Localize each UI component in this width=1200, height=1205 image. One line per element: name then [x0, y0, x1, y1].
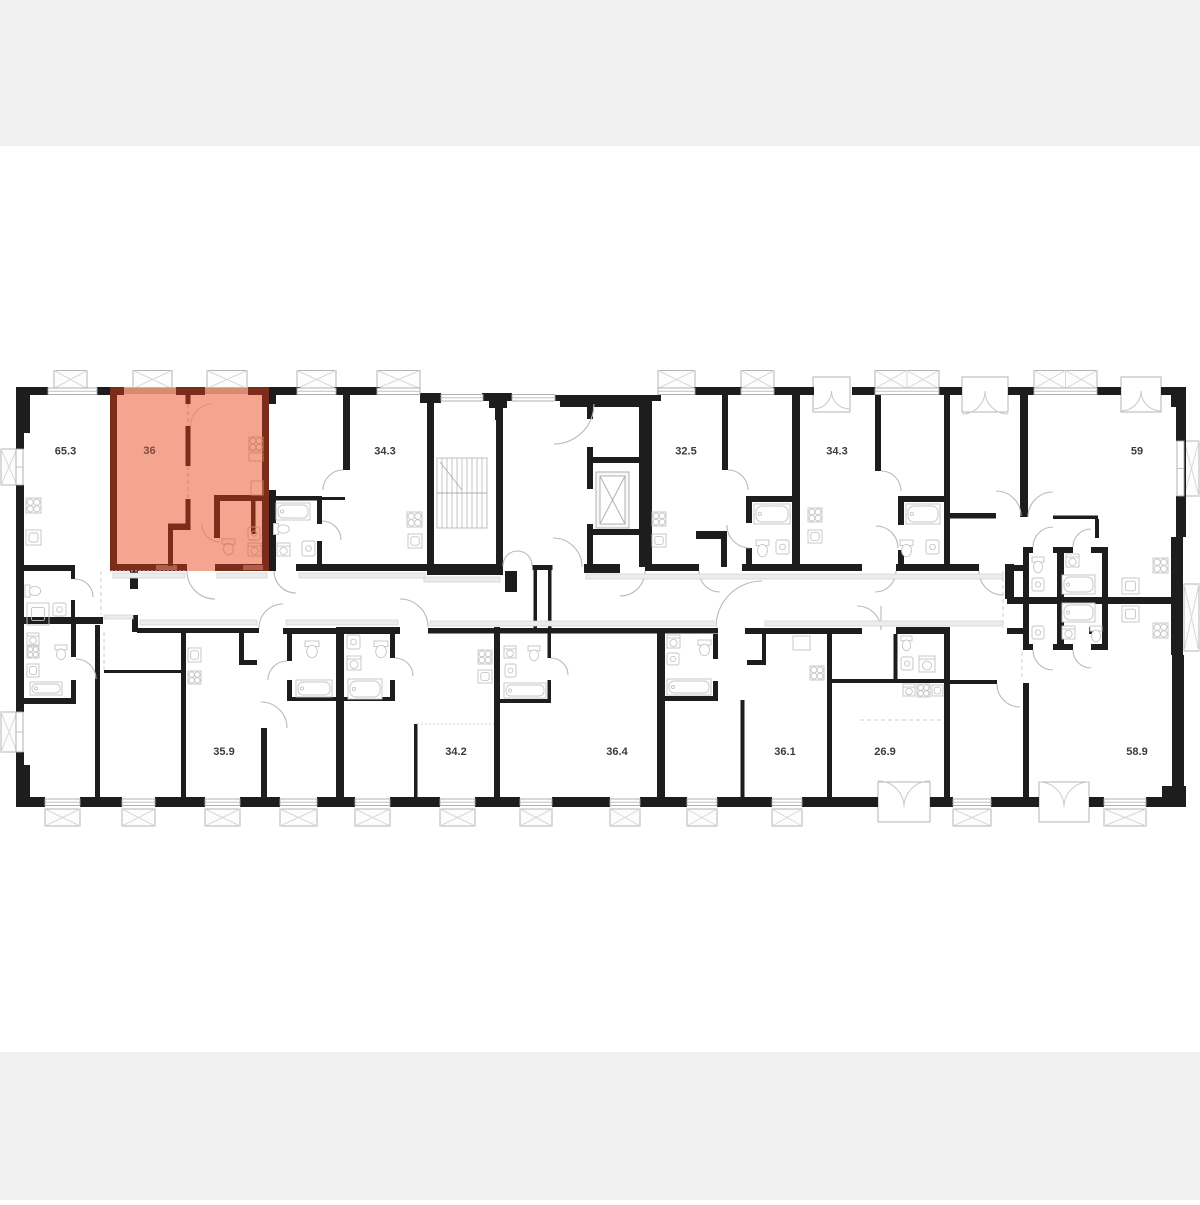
svg-text:59: 59	[1131, 446, 1143, 458]
svg-text:36.4: 36.4	[606, 746, 628, 758]
svg-text:34.3: 34.3	[374, 446, 395, 458]
svg-text:65.3: 65.3	[55, 446, 76, 458]
svg-text:32.5: 32.5	[675, 446, 696, 458]
svg-text:34.2: 34.2	[445, 746, 466, 758]
svg-text:36: 36	[143, 445, 155, 457]
svg-text:58.9: 58.9	[1126, 746, 1147, 758]
svg-text:36.1: 36.1	[774, 746, 795, 758]
svg-text:34.3: 34.3	[826, 446, 847, 458]
svg-text:26.9: 26.9	[874, 746, 895, 758]
svg-text:35.9: 35.9	[213, 746, 234, 758]
